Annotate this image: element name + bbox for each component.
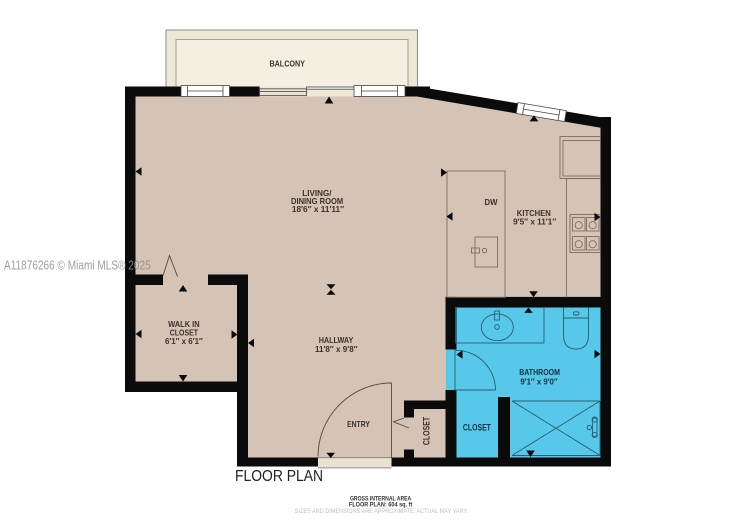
svg-text:9′5″ x 11′1″: 9′5″ x 11′1″: [513, 217, 556, 226]
svg-text:ENTRY: ENTRY: [347, 420, 370, 429]
svg-text:18′6″ x 11′11″: 18′6″ x 11′11″: [292, 205, 344, 214]
svg-text:9′1″ x 9′0″: 9′1″ x 9′0″: [520, 378, 557, 387]
svg-text:SIZES AND DIMENSIONS ARE APPRO: SIZES AND DIMENSIONS ARE APPROXIMATE, AC…: [295, 508, 468, 515]
svg-text:CLOSET: CLOSET: [463, 423, 491, 433]
svg-text:6′1″ x 6′1″: 6′1″ x 6′1″: [165, 337, 203, 346]
svg-text:HALLWAY: HALLWAY: [319, 336, 354, 345]
svg-text:FLOOR PLAN: FLOOR PLAN: [235, 468, 323, 485]
svg-text:CLOSET: CLOSET: [422, 417, 432, 446]
svg-text:DW: DW: [485, 198, 498, 207]
svg-text:BATHROOM: BATHROOM: [519, 368, 560, 377]
svg-text:BALCONY: BALCONY: [269, 59, 305, 68]
svg-text:11′8″ x 9′8″: 11′8″ x 9′8″: [315, 345, 358, 354]
svg-text:A11876266 © Miami MLS® 2025: A11876266 © Miami MLS® 2025: [4, 258, 151, 272]
